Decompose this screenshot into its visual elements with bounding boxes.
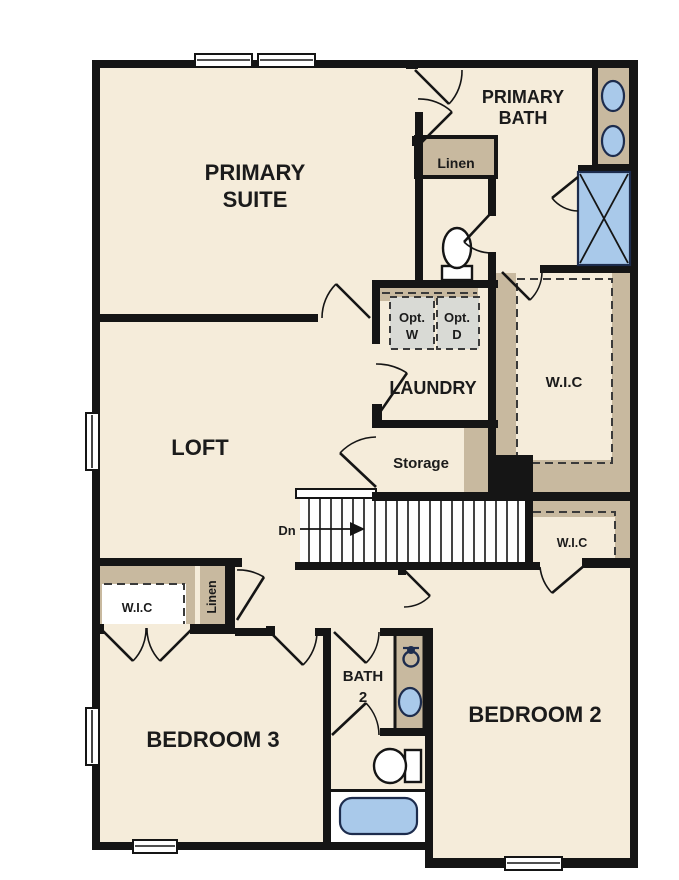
wic-primary-label: W.I.C [546, 374, 583, 391]
loft-label: LOFT [171, 435, 229, 460]
dryer-label: Opt. [444, 310, 470, 325]
wall-segment [380, 628, 432, 636]
storage-label: Storage [393, 455, 449, 472]
wall-segment [190, 624, 235, 634]
laundry-label: LAUNDRY [389, 378, 476, 398]
bathtub [340, 798, 417, 834]
wall-segment [406, 60, 418, 69]
wall-segment [582, 558, 638, 568]
chase-block [490, 455, 533, 493]
bath2-toilet [374, 749, 406, 783]
floor-plan-svg: PRIMARY SUITE PRIMARY BATH Linen LOFT Op… [0, 0, 679, 880]
stairs-dn-label: Dn [278, 523, 295, 538]
wall-segment [372, 492, 533, 501]
dryer-label: D [452, 327, 461, 342]
wall-segment [92, 60, 638, 68]
wall-segment [488, 176, 496, 216]
primary-sink [602, 81, 624, 111]
floor-plan: PRIMARY SUITE PRIMARY BATH Linen LOFT Op… [0, 0, 679, 880]
wall-segment [372, 420, 498, 428]
wall-segment [232, 558, 242, 567]
bedroom3-label: BEDROOM 3 [146, 727, 279, 752]
primary-suite-label: SUITE [223, 187, 288, 212]
bath2-toilet-tank [405, 750, 421, 782]
wall-segment [592, 62, 598, 168]
storage-shelf [464, 428, 489, 492]
primary-bath-label: PRIMARY [482, 87, 564, 107]
wic-bedroom3-label: W.I.C [122, 601, 153, 615]
wic-hall-label: W.I.C [557, 536, 588, 550]
stair-field [300, 497, 525, 563]
primary-sink [602, 126, 624, 156]
wall-segment [530, 492, 638, 501]
wall-segment [323, 628, 331, 844]
wall-segment [372, 288, 380, 344]
wall-segment [295, 562, 540, 570]
washer-label: W [406, 327, 419, 342]
wall-segment [372, 280, 498, 288]
bath2-label: BATH [343, 668, 384, 685]
wic-primary-shelf-left [496, 273, 516, 485]
bath2-sink [399, 688, 421, 716]
wall-segment [380, 728, 432, 736]
linen-bath-label: Linen [437, 155, 474, 171]
wall-segment [540, 265, 638, 273]
bath2-label: 2 [359, 689, 367, 706]
primary-toilet [443, 228, 471, 268]
wall-segment [425, 628, 433, 868]
wall-segment [488, 252, 496, 284]
primary-bath-label: BATH [499, 108, 548, 128]
wall-segment [92, 314, 318, 322]
primary-suite-label: PRIMARY [205, 160, 306, 185]
linen-hall-label: Linen [205, 580, 219, 613]
bedroom2-label: BEDROOM 2 [468, 702, 601, 727]
wall-segment [92, 558, 235, 566]
stair-rail [296, 489, 376, 498]
wall-segment [525, 492, 533, 570]
washer-label: Opt. [399, 310, 425, 325]
wall-segment [630, 60, 638, 868]
wall-segment [225, 566, 235, 626]
tub-room-divider [331, 789, 425, 792]
wic-primary-shelf-right [612, 273, 630, 485]
